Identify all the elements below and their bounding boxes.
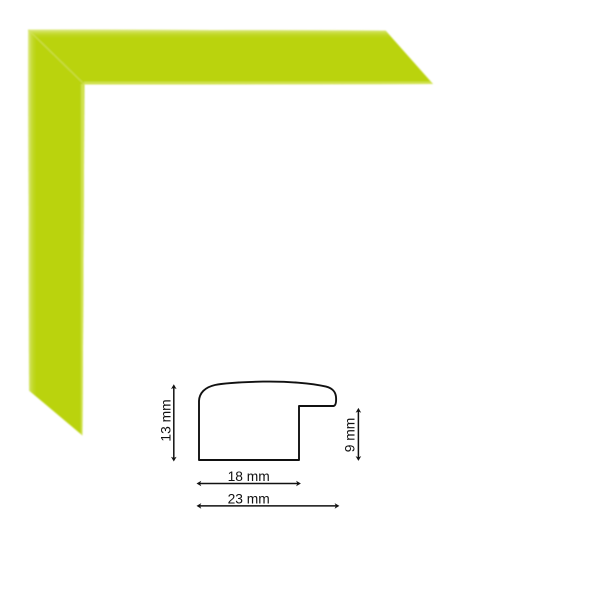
svg-text:18 mm: 18 mm	[228, 469, 270, 484]
svg-text:9 mm: 9 mm	[343, 418, 358, 453]
svg-text:23 mm: 23 mm	[228, 492, 270, 507]
svg-text:13 mm: 13 mm	[159, 399, 174, 441]
